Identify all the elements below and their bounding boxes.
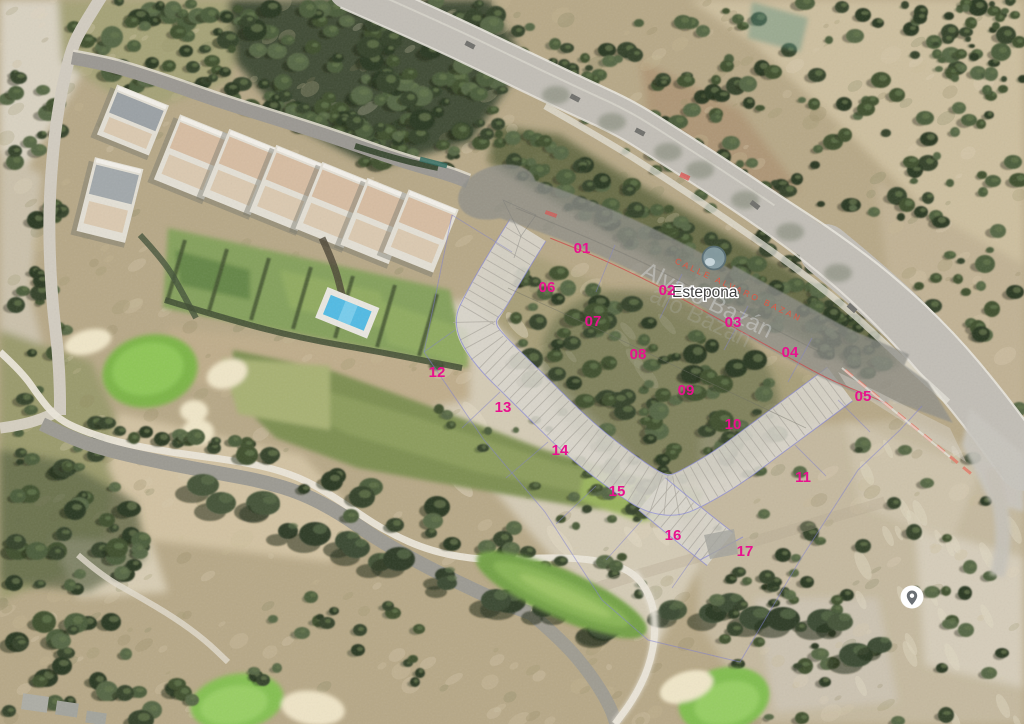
svg-text:09: 09 [678, 382, 695, 399]
svg-text:08: 08 [630, 346, 647, 363]
svg-text:03: 03 [725, 314, 742, 331]
svg-text:17: 17 [737, 543, 754, 560]
svg-text:10: 10 [725, 416, 742, 433]
svg-text:12: 12 [429, 364, 446, 381]
svg-text:07: 07 [585, 313, 602, 330]
svg-text:04: 04 [782, 344, 799, 361]
svg-text:15: 15 [609, 483, 626, 500]
svg-text:02: 02 [659, 282, 676, 299]
svg-text:16: 16 [665, 527, 682, 544]
svg-text:11: 11 [795, 469, 811, 486]
svg-text:01: 01 [574, 240, 591, 257]
svg-text:14: 14 [552, 442, 569, 459]
svg-text:06: 06 [539, 279, 556, 296]
svg-text:05: 05 [855, 388, 872, 405]
svg-text:13: 13 [495, 399, 512, 416]
svg-text:Estepona: Estepona [672, 284, 738, 301]
